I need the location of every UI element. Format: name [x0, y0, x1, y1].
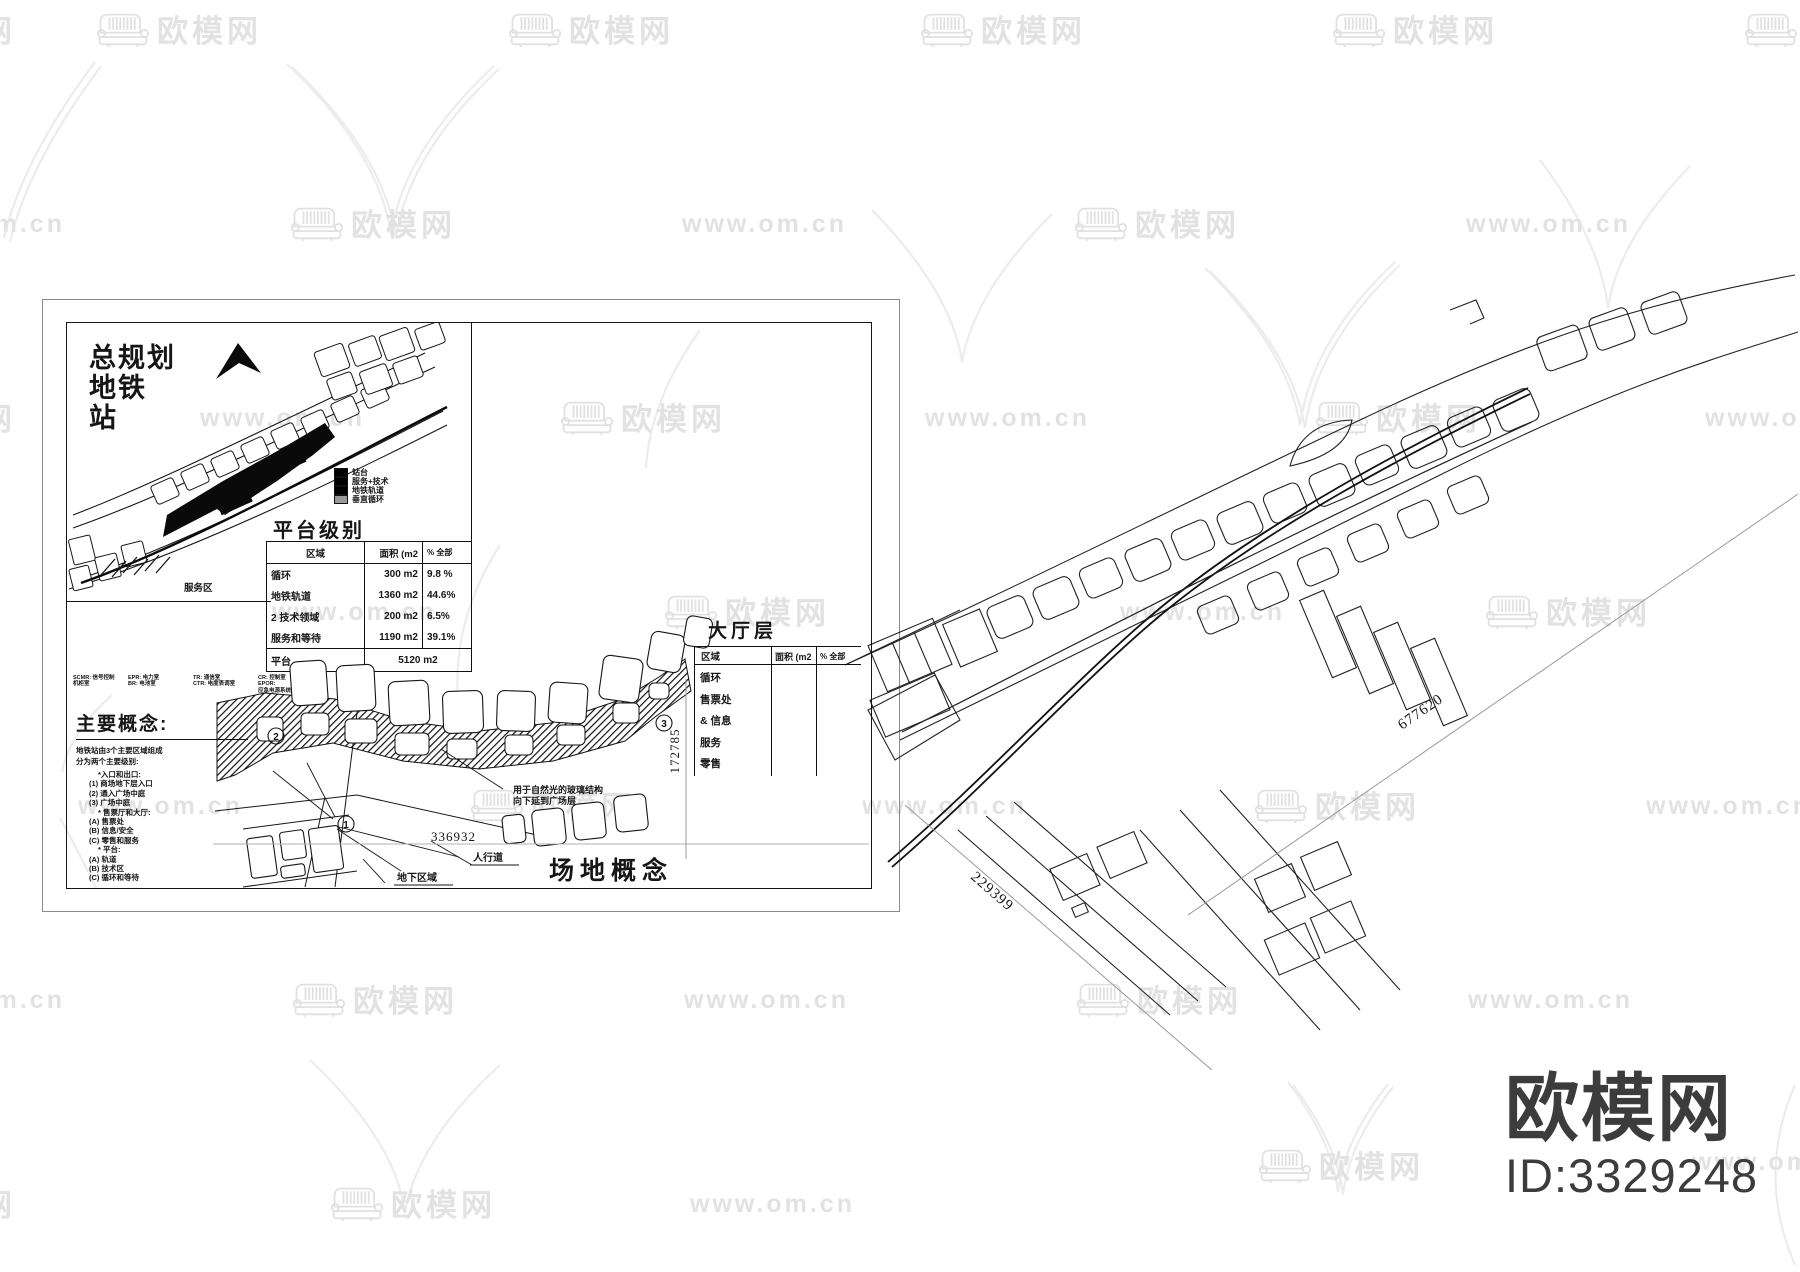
marker-2: 2	[273, 732, 279, 743]
table-row: 售票处	[700, 692, 732, 707]
logo-id: ID:3329248	[1505, 1150, 1758, 1202]
marker-3: 3	[661, 719, 667, 730]
logo-brand: 欧模网	[1505, 1068, 1758, 1150]
dim-line-short	[905, 805, 1272, 1070]
hall-table-title: 大厅层	[708, 616, 777, 643]
legend-item: 垂直循环	[334, 495, 389, 504]
col-header: 面积 (m2	[775, 650, 812, 663]
watermark-tile: 欧模网	[0, 1180, 16, 1225]
sofa-icon	[1258, 1146, 1312, 1184]
watermark-tile: 欧模网	[1258, 1142, 1424, 1187]
site-logo: 欧模网 ID:3329248	[1505, 1068, 1758, 1202]
panel-divider-vertical	[471, 323, 472, 541]
watermark-tile: 欧模网	[1332, 6, 1498, 51]
legend-item: 地铁轨道	[334, 486, 389, 495]
concepts-intro: 地铁站由3个主要区域组成 分为两个主要级别:	[76, 746, 163, 767]
sofa-icon	[1744, 10, 1798, 48]
legend: 站台 服务+技术 地铁轨道 垂直循环	[334, 468, 389, 504]
site-concept-title: 场地概念	[549, 856, 673, 885]
marker-1: 1	[343, 820, 349, 831]
watermark-tile: 欧模网	[292, 976, 458, 1021]
skylight-note-1: 用于自然光的玻璃结构	[512, 784, 603, 795]
dim-height-label: 172785	[667, 729, 682, 774]
sofa-icon	[96, 10, 150, 48]
overall-site-plan: 229399 677620	[840, 270, 1800, 1070]
watermark-url: www.om.cn	[684, 986, 849, 1015]
sidewalk-label: 人行道	[473, 851, 503, 864]
watermark-tile: 欧模网	[290, 200, 456, 245]
legend-swatch	[334, 477, 348, 486]
legend-swatch	[334, 486, 348, 495]
dim-short-label: 229399	[967, 869, 1016, 915]
col-header: % 全部	[423, 542, 472, 564]
col-header: % 全部	[820, 651, 845, 662]
dim-long-label: 677620	[1395, 691, 1446, 733]
dim-line-long	[1188, 494, 1798, 915]
concepts-list: *入口和出口: (1) 商场地下层入口 (2) 通入广场中庭 (3) 广场中庭 …	[76, 770, 153, 883]
dim-width-label: 336932	[431, 829, 476, 844]
watermark-tile: 欧模网	[330, 1180, 496, 1225]
sheet-title: 总规划 地铁 站	[89, 343, 176, 433]
sofa-icon	[1332, 10, 1386, 48]
watermark-tile: 欧模网	[0, 6, 16, 51]
sofa-icon	[508, 10, 562, 48]
table-row: 循环	[700, 670, 721, 685]
watermark-tile: 欧模网	[508, 6, 674, 51]
table-row: 零售	[700, 756, 721, 771]
abbrev-col: SCMR: 信号控制机柜室	[73, 675, 115, 688]
skylight-note-2: 向下延到广场层	[513, 795, 576, 806]
col-header: 区域	[267, 542, 365, 564]
table-row: 循环300 m29.8 %	[267, 564, 472, 586]
table-row: 服务	[700, 735, 721, 750]
watermark-tile: 欧模网	[96, 6, 262, 51]
sofa-icon	[330, 1184, 384, 1222]
sofa-icon	[290, 204, 344, 242]
abbrev-col: EPR: 电力室BR: 电池室	[128, 675, 159, 688]
legend-swatch	[334, 468, 348, 477]
sofa-icon	[1074, 204, 1128, 242]
underground-label: 地下区域	[397, 871, 437, 884]
watermark-tile: 欧模网	[0, 394, 16, 439]
watermark-tile: 欧模网	[1074, 200, 1240, 245]
main-road	[888, 388, 1530, 867]
sofa-icon	[920, 10, 974, 48]
legend-item: 服务+技术	[334, 477, 389, 486]
sofa-icon	[292, 980, 346, 1018]
platform-table-title: 平台级别	[273, 514, 365, 543]
watermark-url: www.om.cn	[0, 210, 65, 239]
hall-table: 区域 面积 (m2 % 全部 循环 售票处 & 信息 服务 零售	[694, 646, 861, 776]
drawing-sheet: 服务区 总规划 地铁 站 站台 服务+技术 地铁轨道 垂直循环 平台级别 区域 …	[66, 322, 872, 889]
watermark-url: www.om.cn	[690, 1190, 855, 1219]
legend-swatch	[334, 495, 348, 504]
watermark-tile: 欧模网	[920, 6, 1086, 51]
service-area-label: 服务区	[184, 582, 213, 594]
watermark-url: www.om.cn	[1466, 210, 1631, 239]
watermark-url: www.om.cn	[0, 986, 65, 1015]
col-header: 面积 (m2	[365, 542, 423, 564]
watermark-url: www.om.cn	[682, 210, 847, 239]
table-row: & 信息	[700, 713, 732, 728]
north-arrow	[216, 343, 261, 379]
cad-screenshot: 欧模网 欧模网 欧模网 欧模网 欧模网 欧模网 www.om.cn 欧模网 ww…	[0, 0, 1800, 1272]
col-header: 区域	[701, 649, 720, 663]
legend-item: 站台	[334, 468, 389, 477]
watermark-tile: 欧模网	[1744, 6, 1800, 51]
